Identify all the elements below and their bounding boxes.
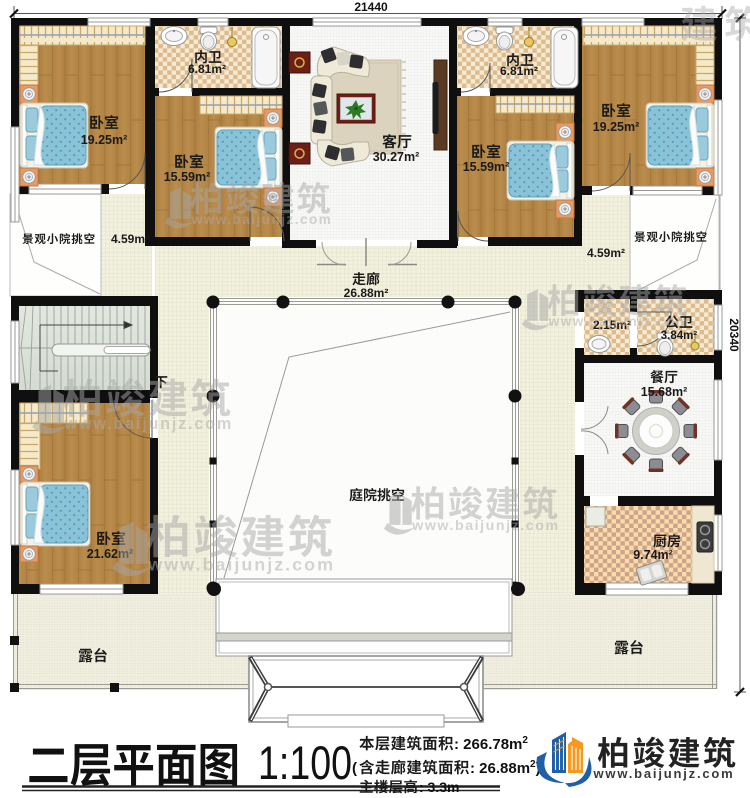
svg-text:www.baijunjz.com: www.baijunjz.com <box>147 555 335 575</box>
svg-text:www.baijunjz.com: www.baijunjz.com <box>64 415 234 433</box>
svg-text:www.baijunjz.com: www.baijunjz.com <box>548 314 690 329</box>
svg-text:1:100: 1:100 <box>258 736 352 789</box>
svg-text:: 266.78m2: : 266.78m2 <box>454 735 528 753</box>
svg-text:15.59m²: 15.59m² <box>463 160 510 174</box>
svg-text:www.baijunjz.com: www.baijunjz.com <box>191 212 333 227</box>
svg-text:www.baijunjz.com: www.baijunjz.com <box>411 518 559 534</box>
svg-text:20340: 20340 <box>727 318 741 352</box>
svg-text:21440: 21440 <box>354 0 388 14</box>
svg-text:6.81m²: 6.81m² <box>188 62 226 76</box>
svg-text:4.59m²: 4.59m² <box>111 232 149 246</box>
svg-text:26.88m²: 26.88m² <box>344 286 389 300</box>
svg-text:30.27m²: 30.27m² <box>373 150 420 164</box>
svg-text:15.59m²: 15.59m² <box>164 170 211 184</box>
svg-text:4.59m²: 4.59m² <box>587 246 625 260</box>
svg-text:15.68m²: 15.68m² <box>641 385 688 399</box>
svg-text:www.baijunjz.com: www.baijunjz.com <box>593 766 735 781</box>
svg-text:(: ( <box>352 760 357 777</box>
svg-text:3.84m²: 3.84m² <box>661 330 698 342</box>
svg-text:19.25m²: 19.25m² <box>81 133 128 147</box>
svg-text:: 26.88m2): : 26.88m2) <box>470 759 541 777</box>
svg-text:19.25m²: 19.25m² <box>593 120 640 134</box>
svg-text:6.81m²: 6.81m² <box>500 64 538 78</box>
svg-text:: 3.3m: : 3.3m <box>419 779 459 795</box>
svg-text:9.74m²: 9.74m² <box>633 548 673 562</box>
